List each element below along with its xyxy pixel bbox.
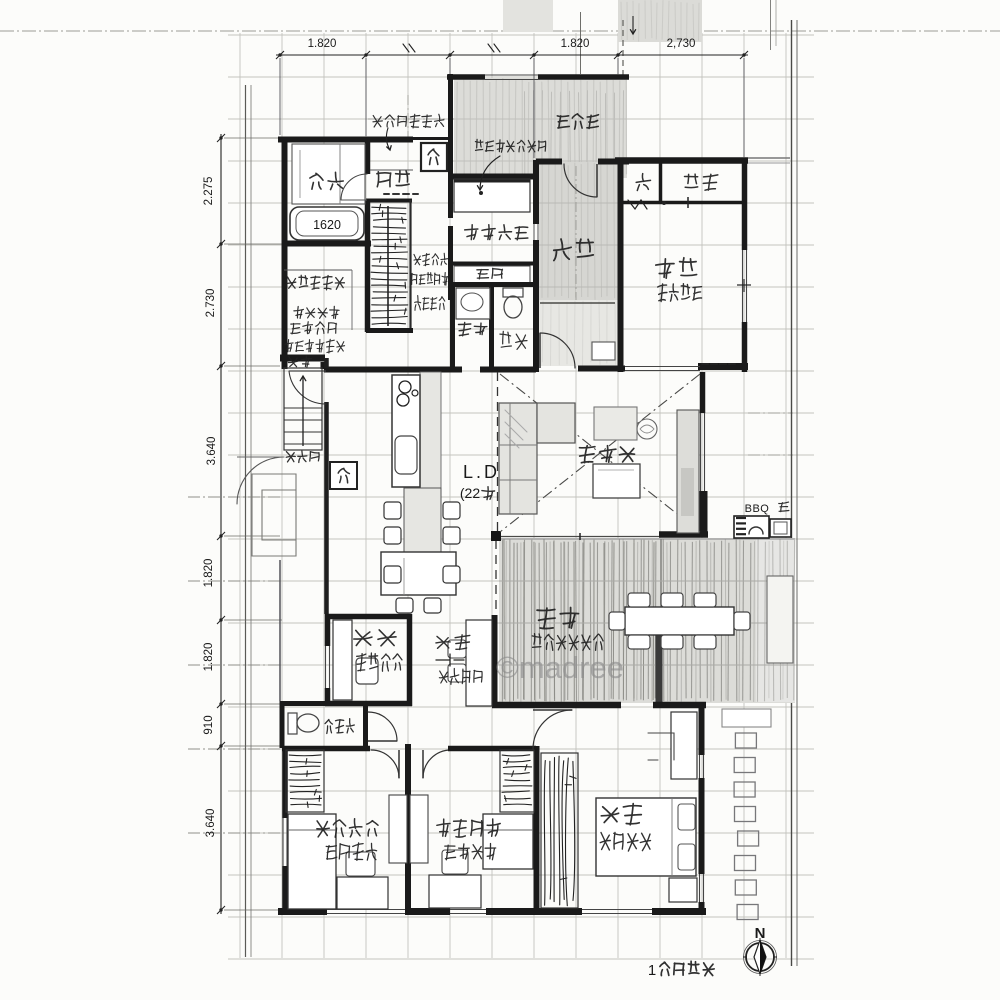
svg-text:3.640: 3.640 xyxy=(205,809,217,838)
svg-text:1.820: 1.820 xyxy=(203,643,215,672)
svg-text:1.820: 1.820 xyxy=(561,38,590,50)
svg-text:2,730: 2,730 xyxy=(667,38,696,50)
svg-text:2.730: 2.730 xyxy=(205,289,217,318)
svg-text:©madree: ©madree xyxy=(496,650,624,685)
svg-text:1620: 1620 xyxy=(313,218,341,232)
svg-text:(22: (22 xyxy=(460,485,480,501)
svg-text:BBQ: BBQ xyxy=(745,503,770,515)
svg-text:1: 1 xyxy=(648,962,656,979)
svg-text:2.275: 2.275 xyxy=(203,177,215,206)
svg-text:910: 910 xyxy=(203,715,215,734)
svg-text:1.820: 1.820 xyxy=(203,559,215,588)
svg-text:3.640: 3.640 xyxy=(206,437,218,466)
svg-text:N: N xyxy=(755,925,766,942)
svg-text:1.820: 1.820 xyxy=(308,38,337,50)
